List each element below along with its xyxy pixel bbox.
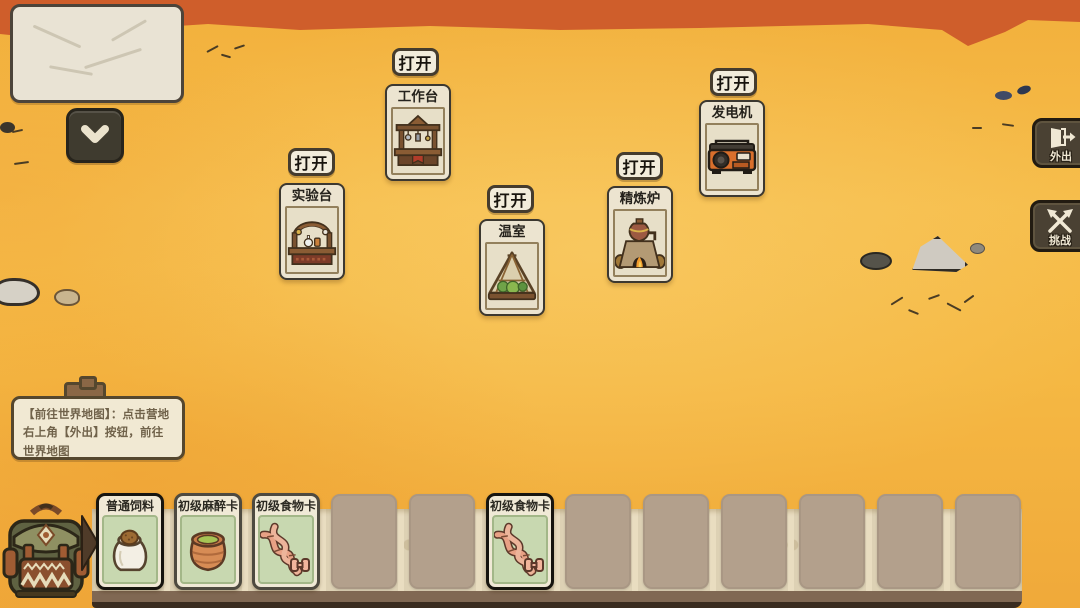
panel-texture <box>84 48 142 69</box>
empty-card-slot[interactable] <box>643 494 709 589</box>
panel-texture <box>111 19 147 42</box>
empty-card-slot[interactable] <box>409 494 475 589</box>
side-button-challenge[interactable]: 挑战 <box>1030 200 1080 252</box>
building-card-workbench[interactable]: 工作台 <box>385 84 451 181</box>
scratch-mark <box>221 54 231 59</box>
open-button-generator[interactable]: 打开 <box>710 68 757 96</box>
empty-card-slot[interactable] <box>331 494 397 589</box>
building-card-title: 实验台 <box>281 185 343 205</box>
building-card-title: 温室 <box>481 221 543 241</box>
building-card-title: 发电机 <box>701 102 763 122</box>
scratch-mark <box>206 45 218 53</box>
collapse-panel-button[interactable] <box>66 108 124 163</box>
open-button-workbench[interactable]: 打开 <box>392 48 439 76</box>
chevron-down-icon <box>79 124 111 148</box>
tutorial-tooltip-text: 【前往世界地图】：点击营地右上角【外出】按钮，前往世界地图 <box>23 409 169 458</box>
dna-icon <box>492 515 548 584</box>
refinery-furnace-icon <box>613 209 667 277</box>
open-button-refinery[interactable]: 打开 <box>616 152 663 180</box>
empty-card-slot[interactable] <box>877 494 943 589</box>
greenhouse-icon <box>485 242 539 310</box>
lab-bench-icon <box>285 206 339 274</box>
hand-card-title: 初级麻醉卡 <box>177 496 239 515</box>
workbench-icon <box>391 107 445 175</box>
empty-card-slot[interactable] <box>799 494 865 589</box>
hand-card-title: 初级食物卡 <box>489 496 551 515</box>
building-card-generator[interactable]: 发电机 <box>699 100 765 197</box>
camp-scene: 打开 工作台 打开 实验台 <box>0 0 1080 608</box>
empty-card-slot[interactable] <box>955 494 1021 589</box>
side-button-label: 挑战 <box>1033 232 1080 248</box>
dna-icon <box>258 515 314 584</box>
scratch-mark <box>946 302 961 311</box>
building-card-title: 工作台 <box>387 86 449 106</box>
side-button-label: 外出 <box>1035 148 1080 164</box>
rock <box>910 236 968 272</box>
rock <box>0 278 40 306</box>
hand-card-food[interactable]: 初级食物卡 <box>486 493 554 590</box>
scratch-mark <box>1002 123 1014 127</box>
side-button-go-out[interactable]: 外出 <box>1032 118 1080 168</box>
panel-texture <box>33 25 82 49</box>
quest-panel <box>10 4 184 103</box>
pebble <box>1016 84 1032 96</box>
hand-card-title: 初级食物卡 <box>255 496 317 515</box>
empty-card-slot[interactable] <box>721 494 787 589</box>
hand-card-title: 普通饲料 <box>99 496 161 515</box>
scratch-mark <box>928 294 940 300</box>
scratch-mark <box>972 127 982 129</box>
building-card-title: 精炼炉 <box>609 188 671 208</box>
hand-card-feed[interactable]: 普通饲料 <box>96 493 164 590</box>
open-button-lab-bench[interactable]: 打开 <box>288 148 335 176</box>
empty-card-slot[interactable] <box>565 494 631 589</box>
backpack-icon <box>2 497 90 603</box>
pebble <box>970 243 985 254</box>
crossed-axes-icon <box>1044 207 1076 234</box>
tutorial-tooltip: 【前往世界地图】：点击营地右上角【外出】按钮，前往世界地图 <box>11 396 185 460</box>
building-card-refinery[interactable]: 精炼炉 <box>607 186 673 283</box>
rock <box>54 289 80 306</box>
generator-icon <box>705 123 759 191</box>
backpack-button[interactable] <box>2 497 90 608</box>
pebble <box>995 91 1012 100</box>
clay-pot-icon <box>180 515 236 584</box>
scratch-mark <box>964 295 975 304</box>
hand-card-anesthesia[interactable]: 初级麻醉卡 <box>174 493 242 590</box>
pebble <box>860 252 892 270</box>
scratch-mark <box>891 296 904 305</box>
scratch-mark <box>14 161 29 165</box>
building-card-greenhouse[interactable]: 温室 <box>479 219 545 316</box>
scratch-mark <box>908 309 919 315</box>
open-button-greenhouse[interactable]: 打开 <box>487 185 534 213</box>
building-card-lab-bench[interactable]: 实验台 <box>279 183 345 280</box>
scratch-mark <box>234 44 245 49</box>
hand-tray-base <box>92 591 1022 608</box>
hand-card-food[interactable]: 初级食物卡 <box>252 493 320 590</box>
feed-bag-icon <box>102 515 158 584</box>
